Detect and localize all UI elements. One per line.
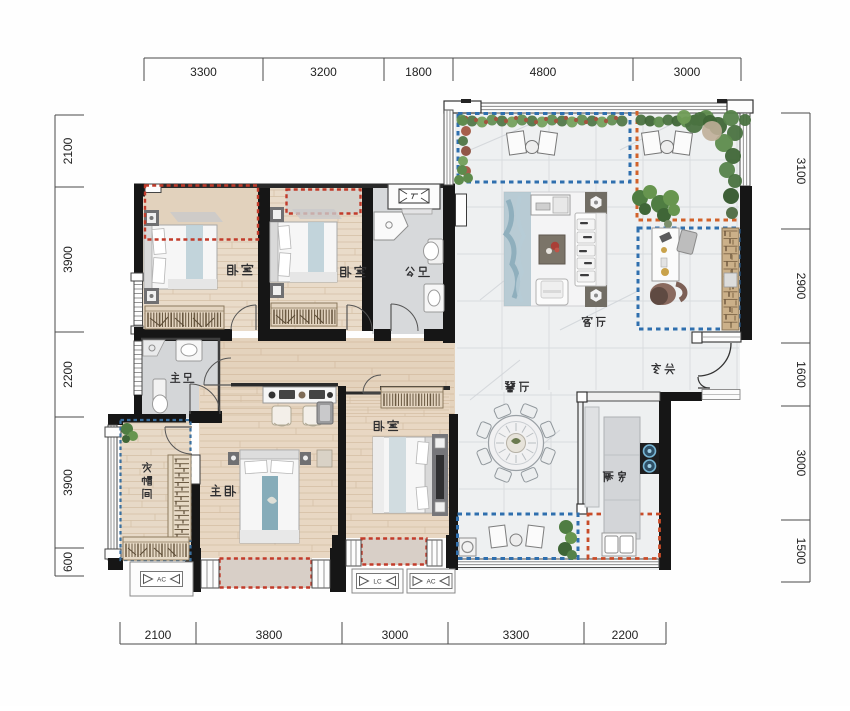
- svg-text:3900: 3900: [61, 246, 75, 273]
- svg-text:LC: LC: [373, 578, 382, 585]
- svg-text:1500: 1500: [794, 538, 808, 565]
- svg-text:2100: 2100: [145, 628, 172, 642]
- svg-text:600: 600: [61, 552, 75, 572]
- svg-text:3200: 3200: [310, 65, 337, 79]
- svg-text:3000: 3000: [794, 450, 808, 477]
- svg-text:2100: 2100: [61, 137, 75, 164]
- svg-text:2200: 2200: [61, 361, 75, 388]
- svg-text:3300: 3300: [503, 628, 530, 642]
- svg-text:3800: 3800: [256, 628, 283, 642]
- svg-text:2900: 2900: [794, 273, 808, 300]
- svg-text:3000: 3000: [674, 65, 701, 79]
- svg-text:1600: 1600: [794, 361, 808, 388]
- svg-text:AC: AC: [426, 578, 435, 585]
- svg-text:2200: 2200: [612, 628, 639, 642]
- svg-text:3000: 3000: [382, 628, 409, 642]
- svg-text:3100: 3100: [794, 158, 808, 185]
- svg-text:3900: 3900: [61, 469, 75, 496]
- svg-text:1800: 1800: [405, 65, 432, 79]
- svg-text:4800: 4800: [530, 65, 557, 79]
- svg-text:AC: AC: [157, 576, 166, 583]
- svg-text:3300: 3300: [190, 65, 217, 79]
